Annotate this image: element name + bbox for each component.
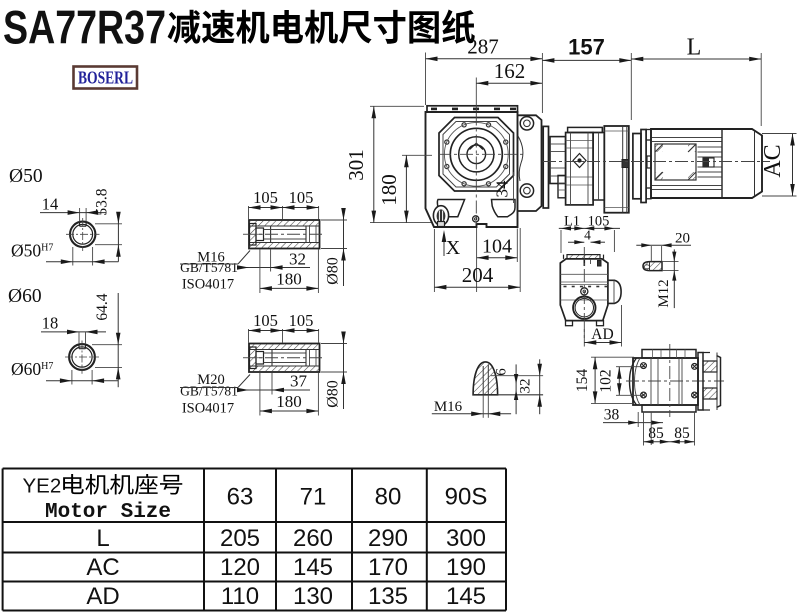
svg-text:AD: AD: [591, 326, 613, 343]
svg-text:130: 130: [293, 583, 333, 610]
svg-text:300: 300: [446, 525, 486, 552]
svg-text:105: 105: [253, 311, 278, 330]
svg-text:180: 180: [276, 270, 302, 289]
svg-text:BOSERL: BOSERL: [78, 68, 133, 88]
svg-text:71: 71: [300, 484, 327, 511]
svg-text:157: 157: [568, 35, 605, 60]
svg-text:180: 180: [276, 392, 302, 411]
svg-text:104: 104: [482, 236, 512, 258]
svg-text:154: 154: [574, 369, 591, 393]
svg-text:GB/T5781: GB/T5781: [180, 260, 238, 275]
svg-text:105: 105: [253, 188, 278, 207]
svg-text:145: 145: [293, 554, 333, 581]
svg-text:Motor Size: Motor Size: [45, 501, 171, 524]
svg-text:90S: 90S: [445, 484, 488, 511]
svg-text:85: 85: [674, 425, 690, 442]
svg-text:X: X: [446, 237, 461, 259]
svg-text:6: 6: [494, 368, 510, 376]
svg-text:20: 20: [675, 231, 690, 247]
svg-text:205: 205: [220, 525, 260, 552]
svg-text:34: 34: [493, 180, 512, 198]
svg-text:53.8: 53.8: [94, 188, 111, 215]
svg-text:32: 32: [289, 250, 306, 269]
svg-text:63: 63: [227, 484, 254, 511]
svg-text:Ø80: Ø80: [325, 380, 342, 408]
svg-text:85: 85: [648, 425, 664, 442]
svg-text:32: 32: [518, 379, 534, 394]
svg-text:ISO4017: ISO4017: [182, 277, 234, 293]
svg-text:18: 18: [42, 314, 59, 333]
svg-text:AD: AD: [86, 583, 119, 610]
svg-text:204: 204: [462, 263, 494, 287]
svg-text:M12: M12: [656, 279, 672, 307]
svg-text:80: 80: [375, 484, 402, 511]
svg-text:Ø50: Ø50: [9, 166, 43, 187]
svg-text:ISO4017: ISO4017: [182, 401, 234, 417]
svg-text:105: 105: [289, 188, 314, 207]
svg-text:M16: M16: [434, 399, 463, 415]
svg-text:YE2: YE2: [23, 475, 62, 498]
svg-text:14: 14: [42, 195, 59, 214]
svg-text:SA77R37: SA77R37: [3, 1, 166, 54]
svg-text:120: 120: [220, 554, 260, 581]
svg-text:105: 105: [588, 214, 610, 230]
svg-text:162: 162: [494, 59, 526, 83]
svg-text:290: 290: [368, 525, 408, 552]
svg-text:190: 190: [446, 554, 486, 581]
svg-text:170: 170: [368, 554, 408, 581]
svg-text:38: 38: [604, 407, 620, 424]
svg-text:145: 145: [446, 583, 486, 610]
svg-text:L: L: [687, 35, 702, 61]
svg-text:L1: L1: [564, 214, 580, 230]
svg-text:287: 287: [467, 35, 499, 59]
svg-text:Ø80: Ø80: [325, 257, 342, 285]
svg-text:AC: AC: [86, 554, 119, 581]
svg-text:110: 110: [221, 583, 259, 610]
svg-text:105: 105: [289, 311, 314, 330]
svg-text:Ø60: Ø60: [8, 286, 42, 307]
svg-text:AC: AC: [760, 144, 786, 177]
svg-text:102: 102: [598, 369, 615, 392]
svg-text:L: L: [96, 525, 109, 552]
svg-text:135: 135: [368, 583, 408, 610]
svg-text:64.4: 64.4: [94, 293, 111, 320]
svg-text:301: 301: [344, 149, 368, 181]
svg-text:260: 260: [293, 525, 333, 552]
svg-text:180: 180: [377, 174, 401, 206]
svg-text:37: 37: [290, 372, 308, 391]
svg-text:4: 4: [584, 228, 591, 243]
svg-text:GB/T5781: GB/T5781: [180, 384, 238, 399]
